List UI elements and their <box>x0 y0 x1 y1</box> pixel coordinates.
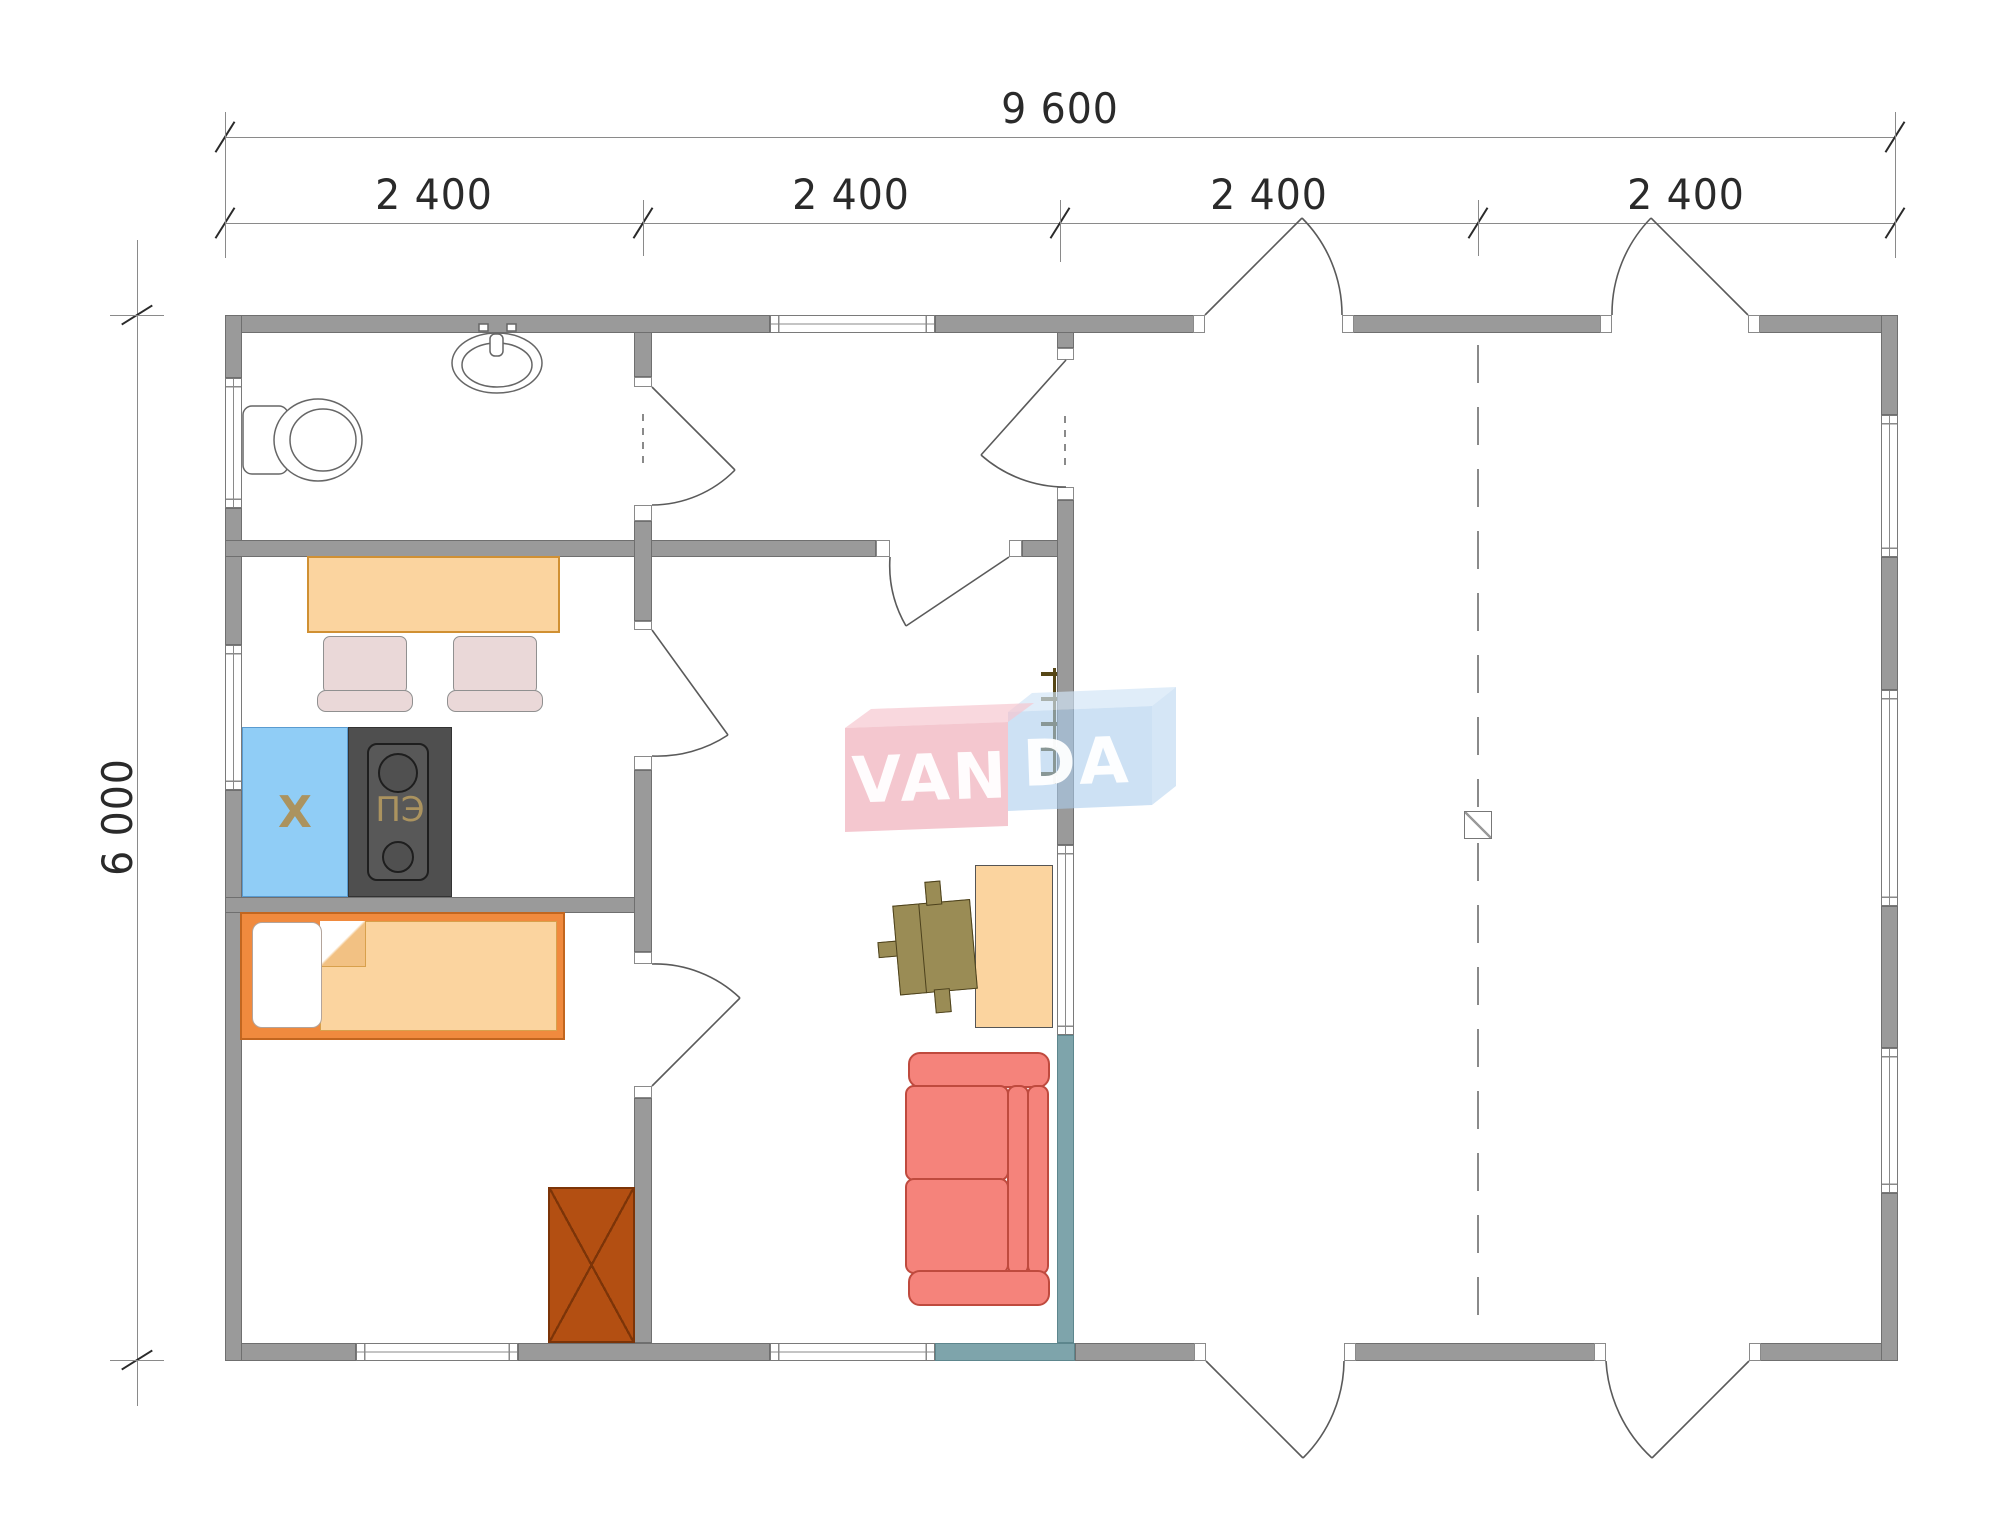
watermark-blue-side <box>1152 687 1176 805</box>
watermark-text-da: DA <box>1011 724 1144 802</box>
floor-plan: 9 600 2 400 2 400 2 400 2 400 6 000 <box>0 0 2000 1524</box>
watermark-text-van: VAN <box>851 739 1003 818</box>
